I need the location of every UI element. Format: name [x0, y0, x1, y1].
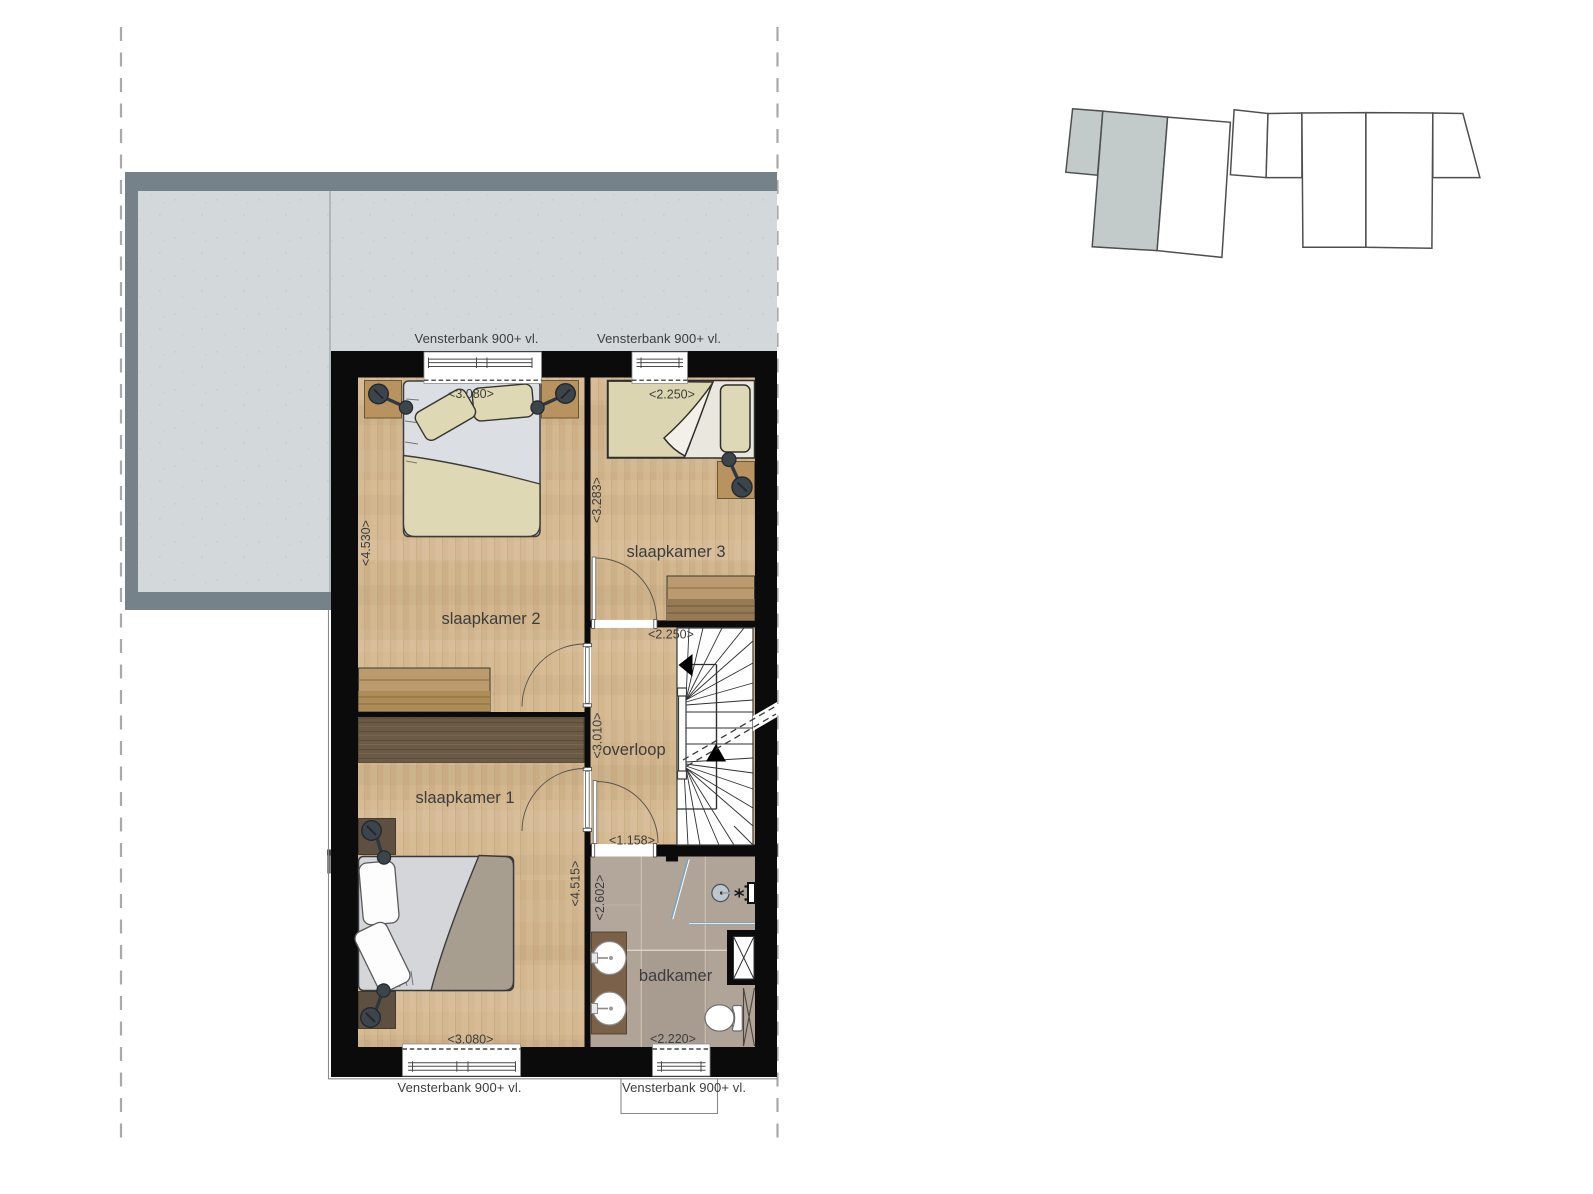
svg-text:<4.515>: <4.515> [569, 861, 583, 907]
svg-text:Vensterbank 900+ vl.: Vensterbank 900+ vl. [597, 331, 721, 346]
svg-text:Vensterbank 900+ vl.: Vensterbank 900+ vl. [622, 1080, 746, 1095]
svg-text:badkamer: badkamer [639, 967, 713, 985]
svg-text:<2.602>: <2.602> [593, 875, 607, 921]
svg-text:Vensterbank 900+ vl.: Vensterbank 900+ vl. [398, 1080, 522, 1095]
svg-text:<3.080>: <3.080> [448, 1033, 494, 1047]
svg-text:slaapkamer 3: slaapkamer 3 [626, 543, 725, 561]
svg-text:Vensterbank 900+ vl.: Vensterbank 900+ vl. [415, 331, 539, 346]
svg-text:<3.010>: <3.010> [590, 713, 604, 759]
svg-text:<4.530>: <4.530> [359, 520, 373, 566]
svg-text:<2.250>: <2.250> [648, 628, 694, 642]
svg-text:<2.250>: <2.250> [649, 388, 695, 402]
svg-text:slaapkamer 1: slaapkamer 1 [415, 789, 514, 807]
svg-text:<3.080>: <3.080> [448, 387, 494, 401]
svg-text:overloop: overloop [602, 741, 665, 759]
svg-text:slaapkamer 2: slaapkamer 2 [441, 610, 540, 628]
svg-text:<2.220>: <2.220> [650, 1032, 696, 1046]
svg-text:<1.158>: <1.158> [609, 834, 655, 848]
svg-text:<3.283>: <3.283> [590, 477, 604, 523]
